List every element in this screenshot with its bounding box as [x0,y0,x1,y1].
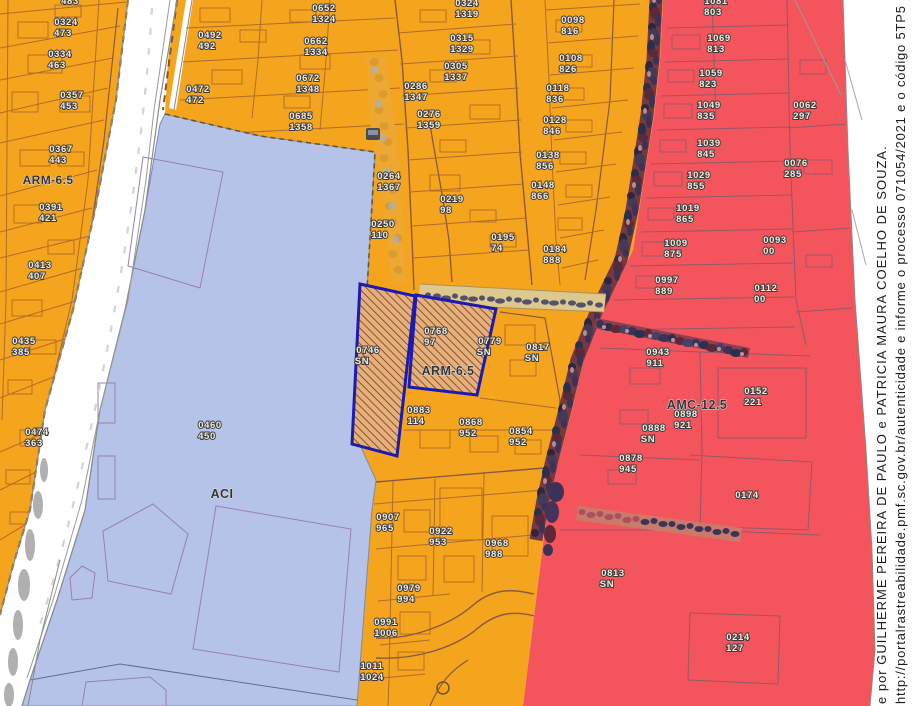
svg-text:0128: 0128 [543,115,567,126]
svg-text:385: 385 [12,347,30,358]
svg-text:0315: 0315 [450,33,474,44]
svg-text:SN: SN [355,356,369,367]
svg-text:0305: 0305 [444,61,468,72]
svg-text:285: 285 [784,169,802,180]
svg-text:0108: 0108 [559,53,583,64]
svg-text:1019: 1019 [676,203,700,214]
svg-text:1367: 1367 [377,182,401,193]
svg-text:0472: 0472 [186,84,210,95]
svg-text:911: 911 [646,358,663,369]
svg-text:473: 473 [54,28,72,39]
svg-text:ARM-6.5: ARM-6.5 [23,173,74,187]
svg-text:1324: 1324 [312,14,336,25]
svg-text:813: 813 [707,44,725,55]
svg-text:297: 297 [793,111,811,122]
svg-text:0324: 0324 [455,0,479,9]
svg-text:0435: 0435 [12,336,36,347]
svg-text:1329: 1329 [450,44,474,55]
svg-text:0474: 0474 [25,427,49,438]
svg-text:0943: 0943 [646,347,670,358]
svg-text:866: 866 [531,191,549,202]
svg-text:0779: 0779 [478,336,502,347]
svg-text:SN: SN [641,434,655,445]
svg-text:0264: 0264 [377,171,401,182]
svg-text:110: 110 [371,230,388,241]
svg-text:1358: 1358 [289,122,313,133]
svg-text:952: 952 [459,428,477,439]
svg-text:1347: 1347 [404,92,428,103]
svg-text:0184: 0184 [543,244,567,255]
svg-text:0152: 0152 [744,386,768,397]
svg-text:0276: 0276 [417,109,441,120]
svg-text:97: 97 [424,337,436,348]
svg-text:0685: 0685 [289,111,313,122]
svg-text:875: 875 [664,249,682,260]
svg-text:1024: 1024 [360,672,384,683]
svg-text:0662: 0662 [304,36,328,47]
svg-text:965: 965 [376,523,394,534]
svg-text:0868: 0868 [459,417,483,428]
svg-text:1011: 1011 [360,661,383,672]
svg-text:0174: 0174 [735,490,759,501]
svg-text:921: 921 [674,420,692,431]
svg-text:0148: 0148 [531,180,555,191]
svg-text:SN: SN [600,579,614,590]
svg-text:0214: 0214 [726,632,750,643]
svg-text:0112: 0112 [754,283,777,294]
svg-text:0357: 0357 [60,90,84,101]
svg-text:0138: 0138 [536,150,560,161]
svg-text:0883: 0883 [407,405,431,416]
svg-text:0093: 0093 [763,235,787,246]
svg-text:0062: 0062 [793,100,817,111]
svg-text:0286: 0286 [404,81,428,92]
svg-text:0968: 0968 [485,538,509,549]
svg-text:http://portalrastreabilidade.p: http://portalrastreabilidade.pmf.sc.gov.… [893,5,908,704]
svg-text:1009: 1009 [664,238,688,249]
svg-text:865: 865 [676,214,694,225]
svg-text:463: 463 [48,60,66,71]
svg-text:1049: 1049 [697,100,721,111]
svg-text:0878: 0878 [619,453,643,464]
svg-text:0250: 0250 [371,219,395,230]
svg-text:0979: 0979 [397,583,421,594]
svg-text:1334: 1334 [304,47,328,58]
svg-text:0219: 0219 [440,194,464,205]
svg-text:0907: 0907 [376,512,400,523]
svg-text:0854: 0854 [509,426,533,437]
svg-text:74: 74 [491,243,503,254]
svg-text:ARM-6.5: ARM-6.5 [422,364,475,378]
svg-text:1069: 1069 [707,33,731,44]
svg-text:407: 407 [28,271,46,282]
svg-text:945: 945 [619,464,637,475]
svg-text:836: 836 [546,94,564,105]
svg-text:0768: 0768 [424,326,448,337]
svg-text:952: 952 [509,437,527,448]
svg-text:0367: 0367 [49,144,73,155]
svg-text:0672: 0672 [296,73,320,84]
svg-text:00: 00 [763,246,775,257]
svg-text:0888: 0888 [642,423,666,434]
svg-text:SN: SN [525,353,539,364]
svg-text:988: 988 [485,549,503,560]
svg-text:0492: 0492 [198,30,222,41]
svg-text:0997: 0997 [655,275,679,286]
svg-text:0652: 0652 [312,3,336,14]
svg-text:363: 363 [25,438,43,449]
svg-text:1319: 1319 [455,9,479,20]
svg-text:0746: 0746 [356,345,380,356]
svg-text:994: 994 [397,594,415,605]
svg-text:1029: 1029 [687,170,711,181]
svg-text:1039: 1039 [697,138,721,149]
svg-text:ACI: ACI [211,487,234,501]
svg-text:823: 823 [699,79,717,90]
svg-text:846: 846 [543,126,561,137]
svg-text:845: 845 [697,149,715,160]
svg-text:114: 114 [407,416,424,427]
svg-text:SN: SN [477,347,491,358]
svg-text:1081: 1081 [704,0,728,7]
svg-text:0413: 0413 [28,260,52,271]
svg-text:816: 816 [561,26,579,37]
svg-text:98: 98 [440,205,452,216]
svg-text:492: 492 [198,41,216,52]
svg-text:856: 856 [536,161,554,172]
svg-text:0076: 0076 [784,158,808,169]
svg-text:450: 450 [198,431,216,442]
svg-text:472: 472 [186,95,204,106]
svg-text:421: 421 [39,213,57,224]
svg-text:0324: 0324 [54,17,78,28]
svg-text:00: 00 [754,294,766,305]
svg-text:855: 855 [687,181,705,192]
svg-text:1337: 1337 [444,72,468,83]
svg-text:0391: 0391 [39,202,63,213]
svg-text:1006: 1006 [374,628,398,639]
svg-text:0813: 0813 [601,568,625,579]
svg-text:453: 453 [60,101,78,112]
svg-text:1359: 1359 [417,120,441,131]
svg-text:953: 953 [429,537,447,548]
svg-text:e por GUILHERME PEREIRA DE PAU: e por GUILHERME PEREIRA DE PAULO e PATRI… [874,145,889,704]
svg-text:826: 826 [559,64,577,75]
svg-text:0098: 0098 [561,15,585,26]
svg-text:835: 835 [697,111,715,122]
svg-text:803: 803 [704,7,722,18]
svg-text:0460: 0460 [198,420,222,431]
svg-text:0195: 0195 [491,232,515,243]
svg-text:0118: 0118 [546,83,569,94]
svg-text:0334: 0334 [48,49,72,60]
svg-text:443: 443 [49,155,67,166]
svg-text:127: 127 [726,643,744,654]
svg-text:0817: 0817 [526,342,550,353]
svg-text:889: 889 [655,286,673,297]
svg-text:1059: 1059 [699,68,723,79]
svg-text:483: 483 [61,0,79,7]
svg-text:0991: 0991 [374,617,398,628]
svg-text:888: 888 [543,255,561,266]
svg-text:0922: 0922 [429,526,453,537]
svg-text:1348: 1348 [296,84,320,95]
svg-text:221: 221 [744,397,762,408]
svg-text:AMC-12.5: AMC-12.5 [667,398,727,412]
